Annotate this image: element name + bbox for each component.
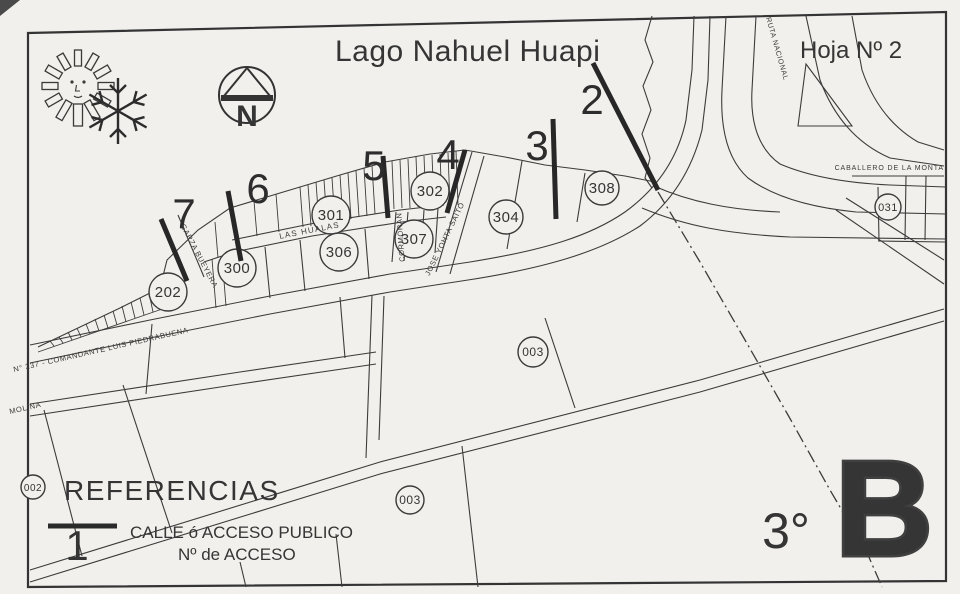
scanned-map-sheet: 202 300 301 302 306 307 304 308 031 003 … [0,0,960,594]
parcel-circle-306: 306 [320,233,358,271]
legend-title: REFERENCIAS [64,475,280,506]
parcel-circle-202: 202 [149,273,187,311]
parcel-label: 031 [878,202,898,214]
parcel-circle-300: 300 [218,249,256,287]
parcel-label: 003 [522,345,544,359]
section-letter-label: B [835,433,933,584]
parcel-label: 304 [493,209,520,226]
access-3-number: 3 [525,122,548,169]
parcel-label: 302 [417,183,444,200]
parcel-circle-031: 031 [875,194,901,220]
access-6-number: 6 [246,165,269,212]
parcel-circle-308: 308 [585,171,619,205]
access-5-number: 5 [362,142,385,189]
section-degree-label: 3° [762,503,810,559]
legend-access-label: Nº de ACCESO [178,545,296,564]
parcel-label: 003 [399,493,421,507]
parcel-circle-003-upper: 003 [518,337,548,367]
access-3-line [553,119,556,219]
sheet-number-label: Hoja Nº 2 [800,37,902,64]
legend-street-label: CALLE ó ACCESO PUBLICO [130,523,353,542]
legend-access-number-symbol: 1 [65,522,88,569]
access-4-number: 4 [436,131,459,178]
street-label-caballero: CABALLERO DE LA MONTA [835,165,944,172]
compass-north-letter: N [236,100,258,133]
parcel-label: 300 [224,260,251,277]
parcel-circle-304: 304 [489,200,523,234]
parcel-label: 002 [24,483,42,494]
parcel-label: 308 [589,180,616,197]
map-canvas: 202 300 301 302 306 307 304 308 031 003 … [0,0,960,594]
parcel-label: 306 [326,244,353,261]
parcel-circle-002: 002 [21,475,45,499]
parcel-label: 202 [155,284,182,301]
map-title: Lago Nahuel Huapi [335,35,600,68]
access-2-number: 2 [580,76,603,123]
parcel-circle-003-lower: 003 [396,486,424,514]
